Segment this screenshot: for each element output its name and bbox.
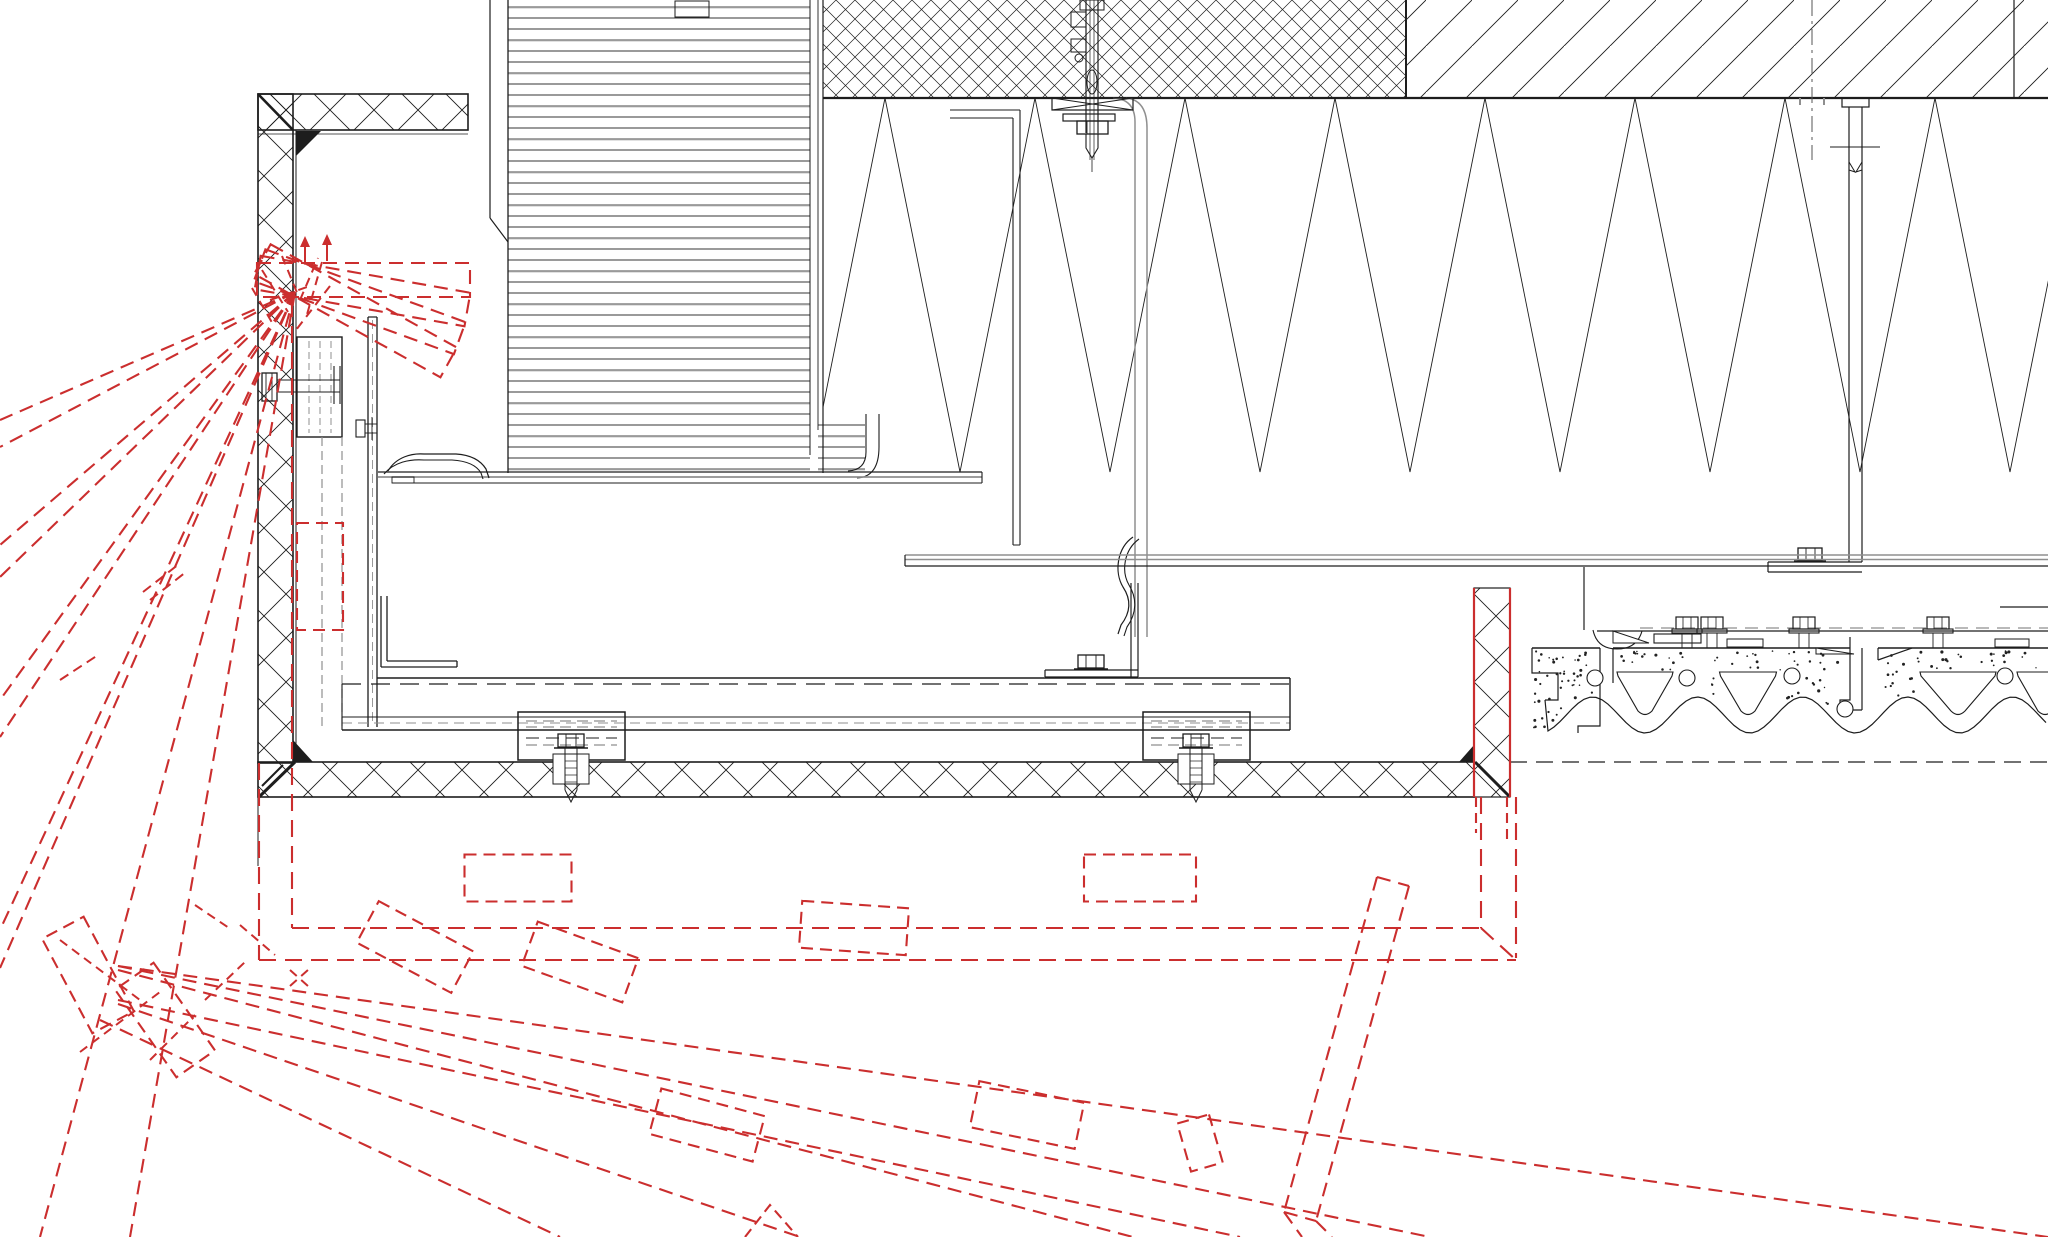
speckle	[1654, 654, 1657, 657]
speckle	[1993, 665, 1995, 667]
speckle	[1574, 659, 1576, 661]
swing-line	[0, 292, 295, 447]
swing-line	[0, 292, 295, 420]
mesh-panel	[823, 0, 1406, 98]
speckle	[1539, 683, 1541, 685]
speckle	[1661, 668, 1664, 671]
speckle	[1712, 677, 1714, 679]
deck-seam	[1578, 648, 1600, 733]
soffit-angle	[950, 110, 1020, 545]
speckle	[1537, 700, 1540, 703]
speckle	[1941, 658, 1944, 661]
speckle	[1890, 654, 1893, 657]
speckle	[1544, 725, 1546, 727]
speckle	[1643, 653, 1645, 655]
speckle	[1572, 684, 1574, 686]
speckle	[1546, 675, 1548, 677]
pin-head	[356, 420, 365, 437]
bolt-head	[1793, 617, 1815, 629]
speckle	[1819, 679, 1822, 682]
speckle	[1577, 659, 1580, 662]
speckle	[1813, 683, 1815, 685]
speckle	[1895, 671, 1897, 673]
sill-tab	[392, 477, 414, 483]
speckle	[1574, 696, 1577, 699]
swing-line	[0, 292, 295, 700]
speckle	[1890, 685, 1892, 687]
speckle	[1622, 659, 1625, 662]
speckle	[1535, 650, 1537, 652]
speckle	[1584, 652, 1587, 655]
speckle	[1636, 651, 1637, 652]
clamp-position	[1084, 855, 1196, 902]
speckle	[1540, 653, 1543, 656]
anchor-sleeve	[1178, 754, 1214, 784]
break-mark	[1849, 162, 1862, 172]
speckle	[1910, 677, 1913, 680]
hollow-core-deck	[1532, 617, 2048, 733]
speckle	[1791, 695, 1793, 697]
speckle	[1534, 701, 1536, 703]
speckle	[1887, 673, 1890, 676]
speckle	[1620, 655, 1623, 658]
speckle	[1797, 664, 1799, 666]
speckle	[1912, 690, 1915, 693]
swing-line	[1377, 877, 1409, 886]
speckle	[1679, 652, 1682, 655]
angle-bracket	[381, 596, 457, 667]
swing-line	[1284, 1212, 1302, 1237]
swing-line	[100, 1020, 560, 1237]
clamp-position	[970, 1081, 1084, 1149]
clamp-position	[1177, 1114, 1223, 1171]
speckle	[2003, 661, 2006, 664]
speckle	[1563, 673, 1565, 675]
swing-line	[1481, 928, 1516, 960]
speckle	[1561, 680, 1563, 682]
bolt-head	[1701, 617, 1723, 629]
cad-drawing-canvas	[0, 0, 2048, 1237]
speckle	[2024, 652, 2027, 655]
speckle	[1746, 655, 1748, 657]
deck-void	[1617, 672, 1673, 715]
speckle	[1731, 663, 1733, 665]
speckle	[1930, 665, 1933, 668]
mid-hanger	[950, 98, 1147, 677]
swing-line	[1316, 886, 1409, 1221]
speckle	[2007, 650, 2010, 653]
hanger-strap	[1113, 98, 1135, 637]
speckle	[1534, 678, 1537, 681]
speckle	[1559, 672, 1561, 674]
speckle	[1825, 702, 1827, 704]
speckle	[2005, 650, 2007, 652]
speckle	[1552, 659, 1554, 661]
speckle	[1672, 661, 1675, 664]
clip-plate	[1727, 639, 1763, 647]
speckle	[2021, 656, 2023, 658]
speckle	[1919, 651, 1922, 654]
deck-chamfer	[1878, 648, 1912, 660]
speckle	[1585, 664, 1587, 666]
speckle	[1940, 650, 1943, 653]
deck-hole	[1784, 668, 1800, 684]
speckle	[1562, 656, 1564, 658]
speckle	[1714, 660, 1716, 662]
swing-line	[0, 292, 295, 930]
speckle	[1917, 657, 1919, 659]
speckle	[1579, 684, 1581, 686]
speckle	[1991, 660, 1993, 662]
speckle	[1633, 651, 1635, 653]
swing-line	[40, 292, 295, 1237]
speckle	[1541, 717, 1543, 719]
deck-hole	[1679, 670, 1695, 686]
speckle	[1573, 679, 1575, 681]
speckle	[1579, 655, 1581, 657]
hanger-strap	[1126, 98, 1147, 637]
speckle	[1711, 683, 1713, 685]
speckle	[1980, 661, 1982, 663]
speckle	[1793, 651, 1795, 653]
zigzag-wave	[660, 98, 2048, 472]
deck-hole	[1997, 668, 2013, 684]
hanger-head	[1842, 98, 1869, 107]
speckle	[1551, 719, 1554, 722]
speckle	[1576, 675, 1579, 678]
speckle	[1887, 662, 1889, 664]
speckle	[1560, 687, 1562, 689]
deck-void	[1720, 672, 1777, 715]
speckle	[1756, 660, 1759, 663]
speckle	[1637, 653, 1639, 655]
speckle	[1944, 658, 1947, 661]
speckle	[1631, 661, 1633, 663]
speckle	[1563, 670, 1565, 672]
swing-line	[205, 962, 245, 1000]
speckle	[1786, 697, 1789, 700]
speckle	[1668, 657, 1670, 659]
speckle	[1836, 661, 1839, 664]
speckle	[1797, 692, 1800, 695]
speckle	[1681, 656, 1683, 658]
bolt-head	[1927, 617, 1949, 629]
bearing-plate-cross	[1052, 98, 1133, 110]
speckle	[1534, 693, 1536, 695]
speckle	[1902, 663, 1905, 666]
speckle	[1809, 660, 1811, 662]
speckle	[1960, 655, 1963, 658]
speckle	[1752, 653, 1754, 655]
section-detail-drawing	[0, 0, 2048, 1237]
base-plate	[1654, 634, 1701, 643]
swing-line	[1284, 877, 1377, 1212]
speckle	[1749, 667, 1751, 669]
deck-left-end	[1532, 648, 1558, 700]
rod-taper	[1086, 134, 1098, 158]
speckle	[1669, 669, 1671, 671]
washer	[1063, 114, 1115, 121]
swing-arrow-head	[322, 234, 332, 245]
speckle	[1712, 693, 1714, 695]
bolt-head	[1078, 655, 1104, 668]
speckle	[1949, 667, 1951, 669]
corner-weld-triangle	[296, 131, 321, 156]
corner-weld-triangle	[1459, 745, 1474, 762]
speckle	[1555, 658, 1558, 661]
spring-arm	[384, 460, 483, 479]
louvre-slats	[508, 2, 810, 473]
speckle	[2035, 667, 2036, 668]
diagonal-hatch-panel	[1406, 0, 2048, 98]
swing-line	[0, 292, 295, 577]
speckle	[1918, 661, 1920, 663]
wall-vertical-bar	[258, 94, 293, 763]
bottom-insulation-bar	[258, 762, 1474, 797]
speckle	[1552, 661, 1555, 664]
swing-line	[0, 292, 295, 737]
swing-line	[143, 564, 179, 592]
speckle	[1548, 698, 1551, 701]
clamp-position	[465, 855, 572, 902]
speckle	[2002, 654, 2005, 657]
swing-line	[1316, 1221, 1332, 1237]
speckle	[1891, 682, 1894, 685]
swing-line	[0, 292, 295, 968]
swing-line	[118, 970, 1133, 1237]
speckle	[1817, 689, 1820, 692]
speckle	[1957, 654, 1959, 656]
speckle	[1560, 707, 1562, 709]
speckle	[1885, 686, 1887, 688]
swing-line	[60, 940, 140, 1000]
speckle	[1579, 674, 1582, 677]
swing-line	[240, 925, 275, 955]
louvre-left-chamfer	[490, 218, 508, 242]
speckle	[1579, 669, 1582, 672]
flap-swing-overlay	[0, 234, 2048, 1237]
speckle	[1556, 714, 1558, 716]
speckle	[1823, 668, 1826, 671]
swing-line	[60, 655, 98, 680]
flap-part-position	[297, 523, 343, 630]
swing-line	[0, 292, 295, 545]
deck-void	[1920, 672, 1996, 715]
bolt-head	[1798, 548, 1822, 560]
speckle	[1534, 726, 1537, 729]
speckle	[1736, 651, 1739, 654]
speckle	[1772, 650, 1774, 652]
clamp-block	[1143, 712, 1250, 760]
louvre-foot-slats	[818, 418, 865, 472]
speckle	[1892, 673, 1894, 675]
wedge	[1613, 631, 1649, 643]
speckle	[1547, 711, 1549, 713]
speckle	[1794, 660, 1796, 662]
speckle	[1897, 694, 1899, 696]
nut	[1077, 121, 1108, 134]
clamp-position	[522, 922, 639, 1003]
speckle	[1641, 655, 1644, 658]
speckle	[1779, 669, 1781, 671]
speckle	[1754, 654, 1756, 656]
speckle	[1533, 719, 1536, 722]
bolt-head	[1676, 617, 1698, 629]
deck-hole	[1587, 670, 1603, 686]
deck-hole	[1837, 701, 1853, 717]
clip-plate	[1995, 639, 2029, 647]
speckle	[1936, 667, 1938, 669]
swing-arrow-head	[300, 236, 310, 247]
speckle	[1788, 653, 1790, 655]
speckle	[1556, 673, 1559, 676]
swing-line	[150, 572, 186, 600]
anchor-sleeve	[553, 754, 589, 784]
speckle	[1716, 657, 1718, 659]
speckle	[1993, 653, 1995, 655]
clamp-position	[357, 901, 474, 993]
zigzag-insulation	[660, 98, 2048, 472]
clamp-block	[518, 712, 625, 760]
clamp-position	[42, 917, 134, 1034]
speckle	[1819, 662, 1821, 664]
swing-line	[118, 1004, 800, 1237]
speckle	[1808, 651, 1810, 653]
speckle	[1539, 671, 1541, 673]
speckle	[1820, 653, 1822, 655]
swing-line	[195, 905, 232, 930]
speckle	[1573, 672, 1576, 675]
speckle	[1824, 687, 1825, 688]
speckle	[1805, 677, 1808, 680]
swing-line	[118, 966, 2048, 1237]
speckle	[1567, 680, 1569, 682]
speckle	[1757, 666, 1760, 669]
speckle	[1538, 659, 1541, 662]
swing-line	[118, 966, 1430, 1237]
speckle	[1548, 657, 1550, 659]
speckle	[1591, 692, 1593, 694]
speckle	[1990, 653, 1993, 656]
